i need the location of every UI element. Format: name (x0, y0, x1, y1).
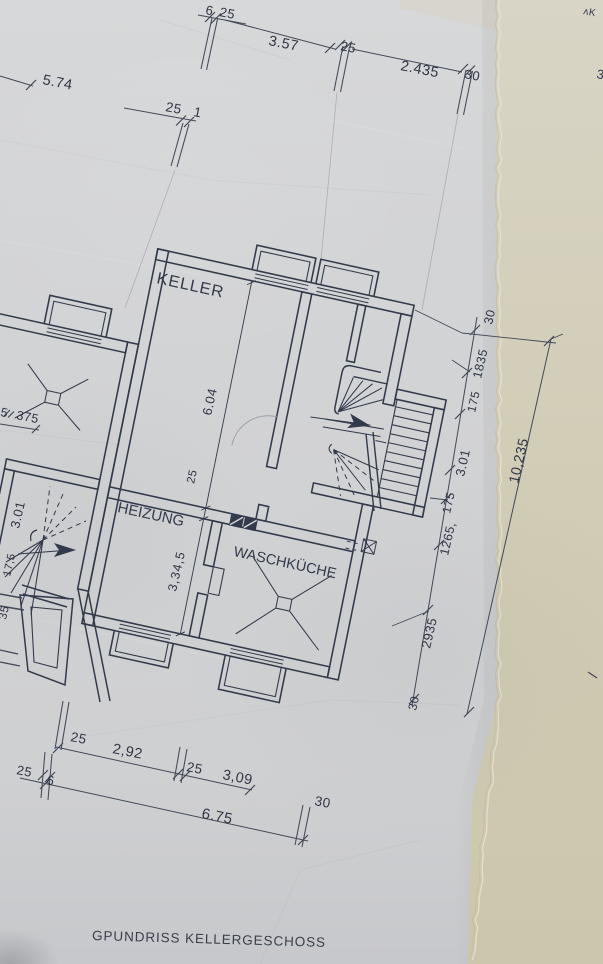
svg-text:25: 25 (218, 4, 236, 22)
svg-text:25: 25 (15, 762, 33, 780)
svg-text:25: 25 (339, 38, 357, 56)
svg-text:30: 30 (313, 793, 332, 811)
svg-text:25: 25 (164, 99, 183, 117)
svg-text:25: 25 (185, 759, 204, 777)
svg-text:25: 25 (69, 729, 88, 747)
svg-text:30: 30 (463, 66, 481, 84)
